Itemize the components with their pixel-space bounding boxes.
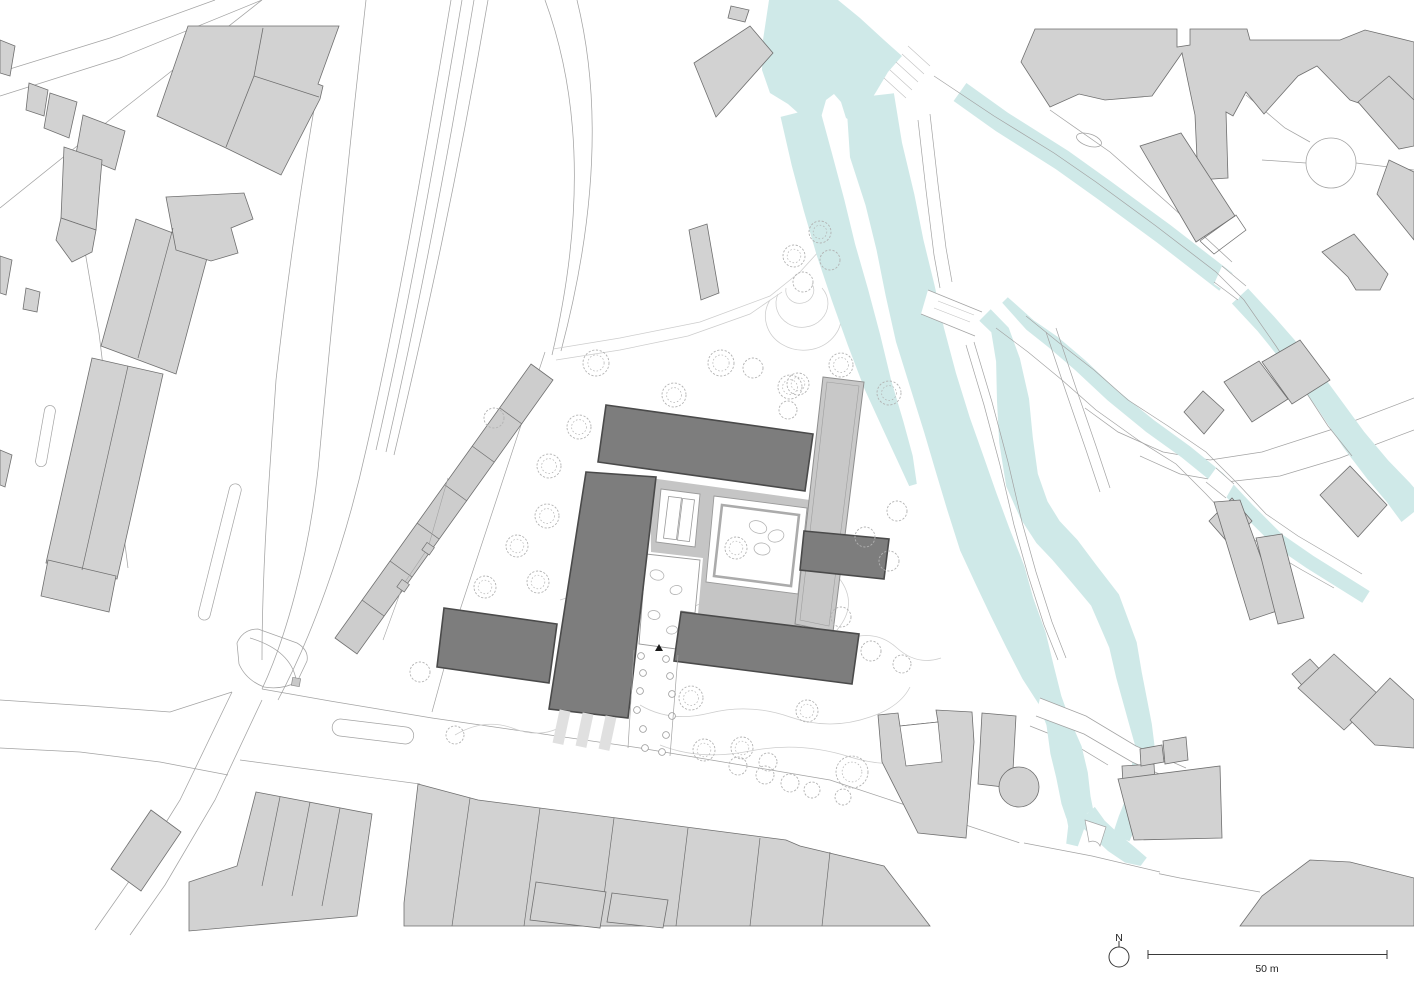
svg-text:N: N: [1115, 932, 1123, 944]
svg-text:50 m: 50 m: [1255, 963, 1279, 975]
